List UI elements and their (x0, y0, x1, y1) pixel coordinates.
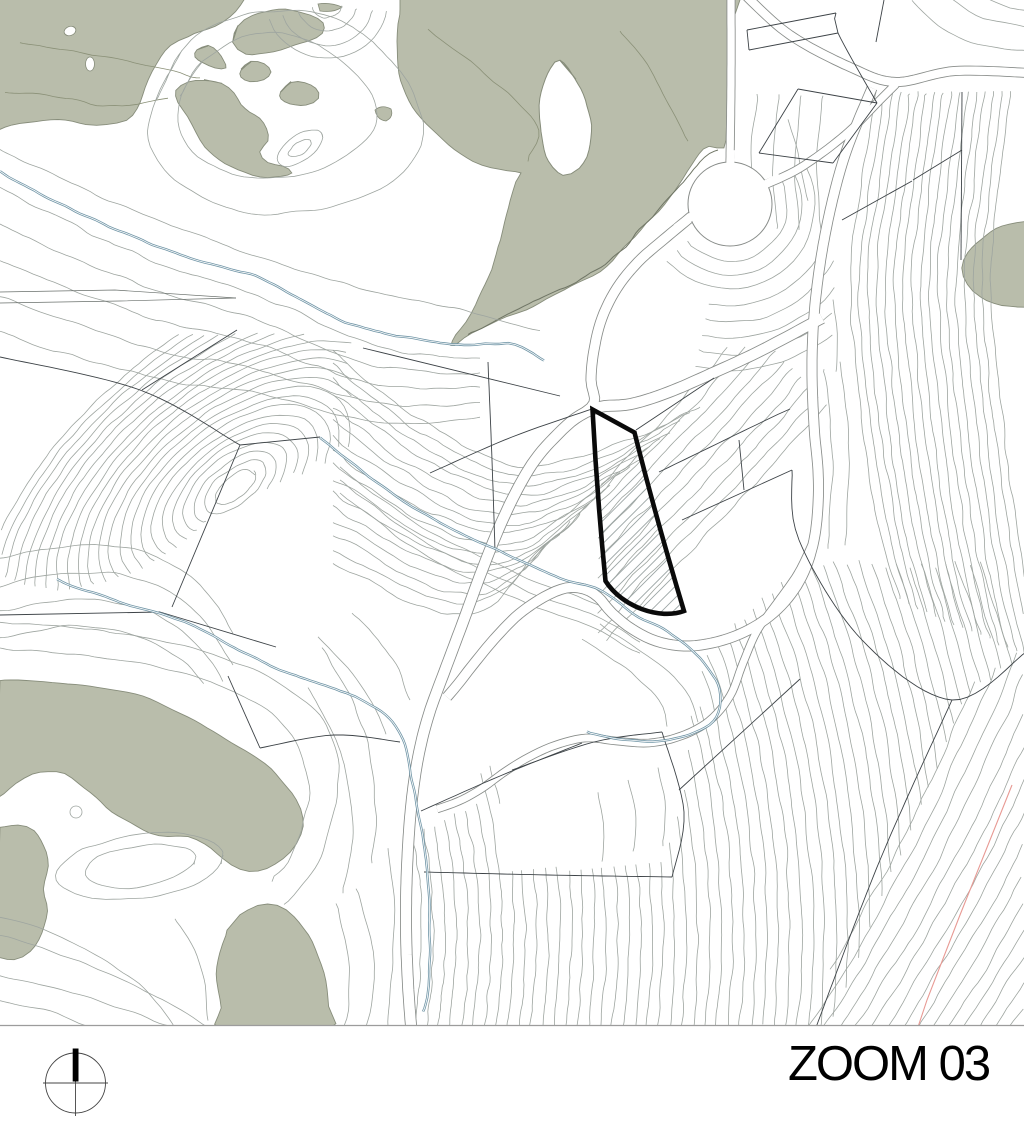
svg-text:ZOOM 03: ZOOM 03 (788, 1037, 990, 1091)
